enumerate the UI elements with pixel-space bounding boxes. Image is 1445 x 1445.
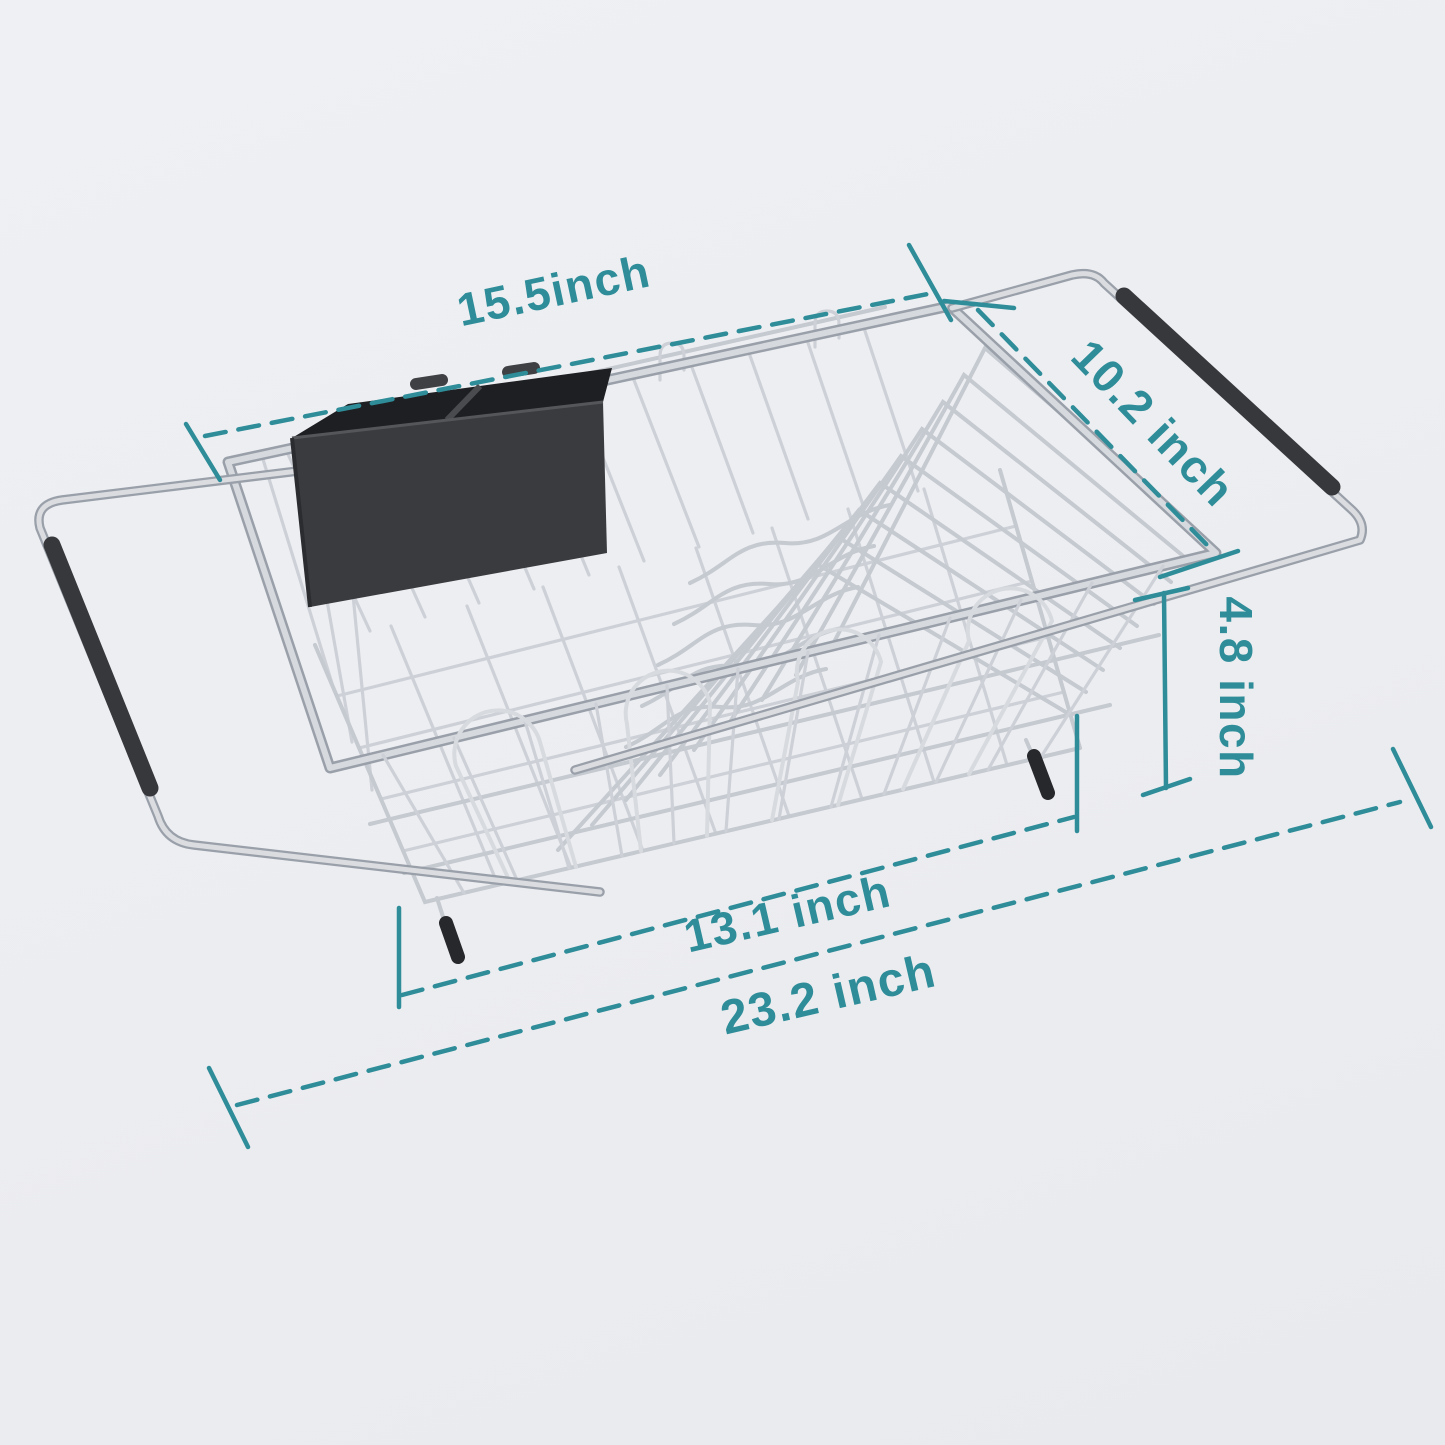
handle-grip — [52, 545, 150, 788]
dimension-label-top-width: 15.5inch — [452, 245, 655, 337]
dimension-label-basket-length: 13.1 inch — [679, 864, 896, 962]
dimension-tick — [1393, 749, 1431, 827]
wire — [525, 721, 569, 868]
plate-divider-chevrons — [558, 348, 1205, 850]
foot-tip — [1034, 756, 1048, 793]
dimension-label-height: 4.8 inch — [1210, 596, 1262, 779]
product-dimension-diagram: 15.5inch 10.2 inch 4.8 inch 13.1 inch — [0, 0, 1445, 1445]
wire — [863, 325, 918, 491]
wire — [596, 704, 622, 856]
dimension-tick — [209, 1068, 248, 1147]
wire — [632, 375, 699, 547]
wire — [658, 587, 858, 665]
wire — [467, 606, 571, 868]
wire — [806, 337, 863, 505]
wire — [748, 350, 808, 519]
wire — [391, 626, 498, 885]
dimension-line — [1164, 593, 1166, 788]
wire — [690, 362, 753, 533]
dimension-height: 4.8 inch — [1135, 588, 1262, 795]
foot-tip — [446, 923, 458, 957]
wire — [779, 652, 808, 819]
utensil-holder — [292, 368, 612, 607]
utensil-holder-clip — [508, 368, 534, 372]
utensil-holder-clip — [416, 380, 442, 384]
diagram-canvas: 15.5inch 10.2 inch 4.8 inch 13.1 inch — [0, 0, 1445, 1445]
dimension-label-extended-length: 23.2 inch — [716, 944, 941, 1045]
